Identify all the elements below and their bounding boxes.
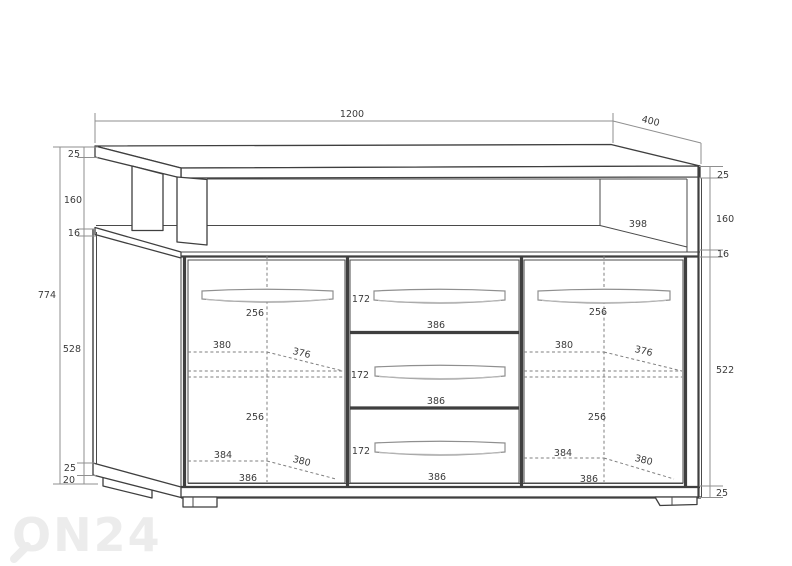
left-door-386: 386: [239, 473, 257, 484]
right-door-384: 384: [554, 448, 572, 459]
dim-left-25-top: 25: [68, 149, 80, 160]
dim-label-774: 774: [38, 290, 56, 301]
top-panel-front-face: [181, 166, 700, 178]
open-shelf-section: [96, 166, 687, 252]
left-door-256-bottom: 256: [246, 412, 264, 423]
shelf-divider-column-back: [132, 166, 163, 231]
drawer-1-386: 386: [427, 320, 445, 331]
dim-left-528: 528: [63, 344, 81, 355]
dim-right-16: 16: [717, 249, 729, 260]
dim-left-25-bottom: 25: [64, 463, 76, 474]
dim-right-25-top: 25: [717, 170, 729, 181]
right-door-380-top: 380: [555, 340, 573, 351]
drawer-2-386: 386: [427, 396, 445, 407]
right-door-256-bottom: 256: [588, 412, 606, 423]
left-door-380-bottom: 380: [291, 454, 311, 469]
right-door-380-bottom: 380: [633, 453, 653, 468]
dim-label-398: 398: [629, 219, 647, 230]
carcass-top-left-slant: [95, 228, 181, 259]
drawing-svg: ON24: [0, 0, 792, 566]
watermark-text: ON24: [12, 508, 162, 562]
right-door-376: 376: [633, 344, 653, 359]
left-door-380-top: 380: [213, 340, 231, 351]
front-right-foot: [655, 497, 697, 506]
right-door-256-top: 256: [589, 307, 607, 318]
dim-label-400: 400: [640, 114, 660, 129]
dim-left-20: 20: [63, 475, 75, 486]
shelf-divider-column-front: [177, 177, 207, 245]
front-left-foot: [183, 497, 217, 507]
furniture-dimension-drawing: ON24: [0, 0, 792, 566]
dim-right-522: 522: [716, 365, 734, 376]
drawer-3-172: 172: [352, 446, 370, 457]
dim-label-1200: 1200: [340, 109, 364, 120]
top-panel-surface: [95, 145, 700, 169]
right-door-386: 386: [580, 474, 598, 485]
left-door-256-top: 256: [246, 308, 264, 319]
dim-left-160: 160: [64, 195, 82, 206]
drawer-3-386: 386: [428, 472, 446, 483]
drawer-1-172: 172: [352, 294, 370, 305]
top-panel: [95, 145, 700, 179]
dim-right-25-bottom: 25: [716, 488, 728, 499]
dim-right-160: 160: [716, 214, 734, 225]
dim-left-16: 16: [68, 228, 80, 239]
drawer-2-172: 172: [351, 370, 369, 381]
left-door-384: 384: [214, 450, 232, 461]
on24-watermark: ON24: [12, 508, 162, 562]
